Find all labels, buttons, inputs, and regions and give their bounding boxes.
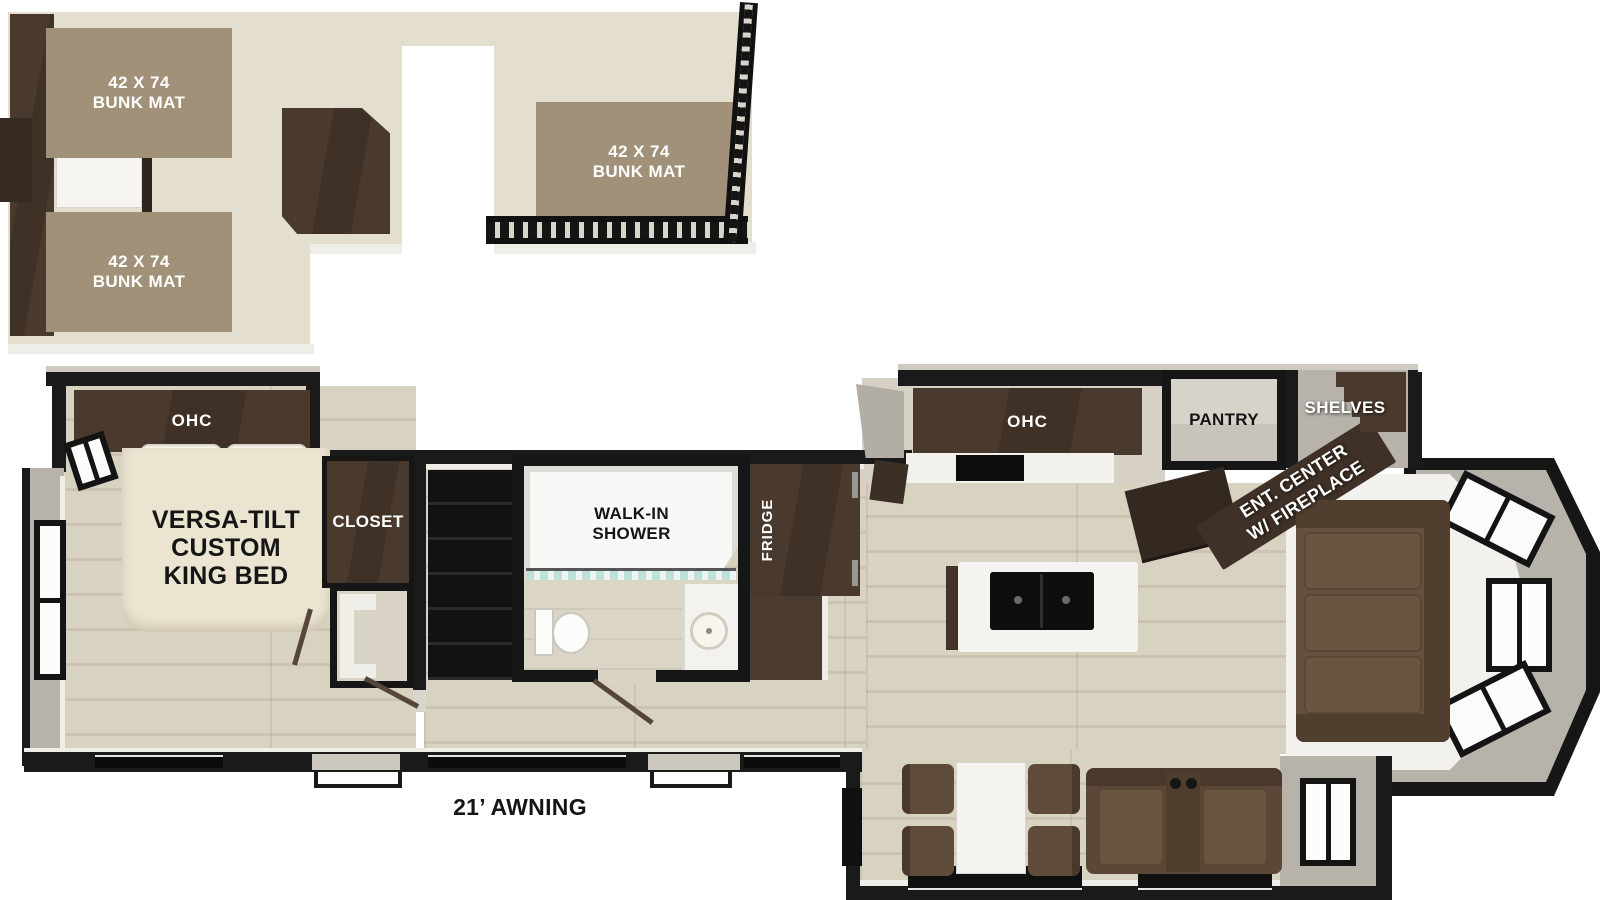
kitchen-tall-cabinet: [750, 596, 822, 680]
vanity-counter-bottom: [340, 664, 376, 678]
fridge-handle: [852, 560, 858, 586]
slideout-window: [842, 788, 862, 866]
sink-faucet: [1014, 596, 1022, 604]
king-bed-label: VERSA-TILT CUSTOM KING BED: [126, 495, 326, 600]
bunk-mat-name: BUNK MAT: [93, 272, 186, 292]
bottom-wall-window: [744, 755, 840, 768]
cupholder: [1170, 778, 1181, 789]
bunk-mat-2: 42 X 74 BUNK MAT: [46, 212, 232, 332]
bedroom-ohc-label: OHC: [172, 411, 213, 431]
shelf-step: [1336, 372, 1406, 387]
window-pane: [40, 603, 60, 675]
bathroom-door-gap: [598, 670, 656, 684]
dinette-chair: [1028, 826, 1080, 876]
theater-seat: [1202, 788, 1268, 866]
pantry-label: PANTRY: [1189, 410, 1259, 430]
shower-label-line: WALK-IN: [594, 504, 669, 524]
bed-label-line: CUSTOM: [171, 534, 281, 562]
bedroom-hall-doorway: [413, 690, 426, 712]
kitchen-ohc: OHC: [913, 388, 1142, 455]
sofa-cushion: [1304, 594, 1422, 652]
loft-floor-edge: [8, 344, 314, 354]
entry-door-main: [648, 754, 740, 770]
dinette-chair: [1028, 764, 1080, 814]
closet: CLOSET: [322, 456, 414, 588]
bottom-wall-window: [95, 755, 223, 768]
bay-window-middle: [1486, 578, 1552, 672]
fridge-handle: [852, 472, 858, 498]
pantry: PANTRY: [1162, 370, 1286, 470]
bedroom-left-wall: [52, 372, 66, 472]
rv-floorplan: 42 X 74 BUNK MAT 42 X 74 BUNK MAT 42 X 7…: [0, 0, 1600, 900]
bathroom: WALK-IN SHOWER: [512, 454, 750, 682]
theater-seat: [1098, 788, 1164, 866]
cupholder: [1186, 778, 1197, 789]
bunk-mat-1: 42 X 74 BUNK MAT: [46, 28, 232, 158]
bunk-mat-name: BUNK MAT: [593, 162, 686, 182]
cooktop: [956, 455, 1024, 481]
sofa-back: [1424, 500, 1450, 742]
bedroom-hall-wall: [413, 450, 426, 690]
sink-faucet: [706, 628, 712, 634]
awning-label: 21’ AWNING: [420, 794, 620, 821]
bunk-mat-name: BUNK MAT: [93, 93, 186, 113]
shower-label-line: SHOWER: [592, 524, 670, 544]
kitchen-ohc-label: OHC: [1007, 412, 1048, 432]
loft-stairs: [428, 470, 514, 680]
loft-cabinet: [282, 108, 390, 234]
sink-divider: [1040, 574, 1043, 628]
bunk-mat-size: 42 X 74: [108, 73, 169, 93]
loft-railing-bottom: [486, 216, 748, 244]
slideout-right-wall: [1376, 756, 1392, 898]
loft-floor-edge: [310, 244, 402, 254]
shower-glass: [526, 568, 736, 580]
bed-label-line: VERSA-TILT: [152, 506, 300, 534]
bedroom-ohc: OHC: [74, 390, 310, 452]
window-pane: [40, 526, 60, 598]
closet-label: CLOSET: [332, 512, 403, 532]
sink-faucet: [1062, 596, 1070, 604]
window-pane: [1522, 584, 1547, 666]
window-pane: [1331, 784, 1351, 860]
dinette-chair: [902, 826, 954, 876]
living-side-window: [1300, 778, 1356, 866]
bed-label-line: KING BED: [164, 562, 289, 590]
bedroom-top-wall: [46, 372, 320, 386]
fridge-label: FRIDGE: [755, 470, 781, 590]
entry-door-bedroom: [312, 754, 400, 770]
counter-end-cabinet: [869, 460, 908, 504]
bunk-mat-size: 42 X 74: [108, 252, 169, 272]
loft-wardrobe-block: [0, 118, 32, 202]
entry-step: [650, 772, 732, 788]
dinette-table: [956, 762, 1026, 874]
bottom-wall-window: [428, 755, 626, 768]
dinette-chair: [902, 764, 954, 814]
toilet-tank: [534, 608, 554, 656]
entry-step: [314, 772, 402, 788]
sofa-cushion: [1304, 532, 1422, 590]
bedroom-slide-outer-wall: [22, 468, 30, 766]
shower-label: WALK-IN SHOWER: [544, 494, 719, 554]
loft-floor-strip: [402, 12, 494, 46]
toilet-bowl: [552, 612, 590, 654]
window-pane: [1306, 784, 1326, 860]
sofa-cushion: [1304, 656, 1422, 714]
cabinet-lining: [822, 596, 828, 680]
bunk-mat-size: 42 X 74: [608, 142, 669, 162]
bunk-mat-3: 42 X 74 BUNK MAT: [536, 102, 742, 222]
window-pane: [1492, 584, 1517, 666]
bedroom-left-window: [34, 520, 66, 680]
